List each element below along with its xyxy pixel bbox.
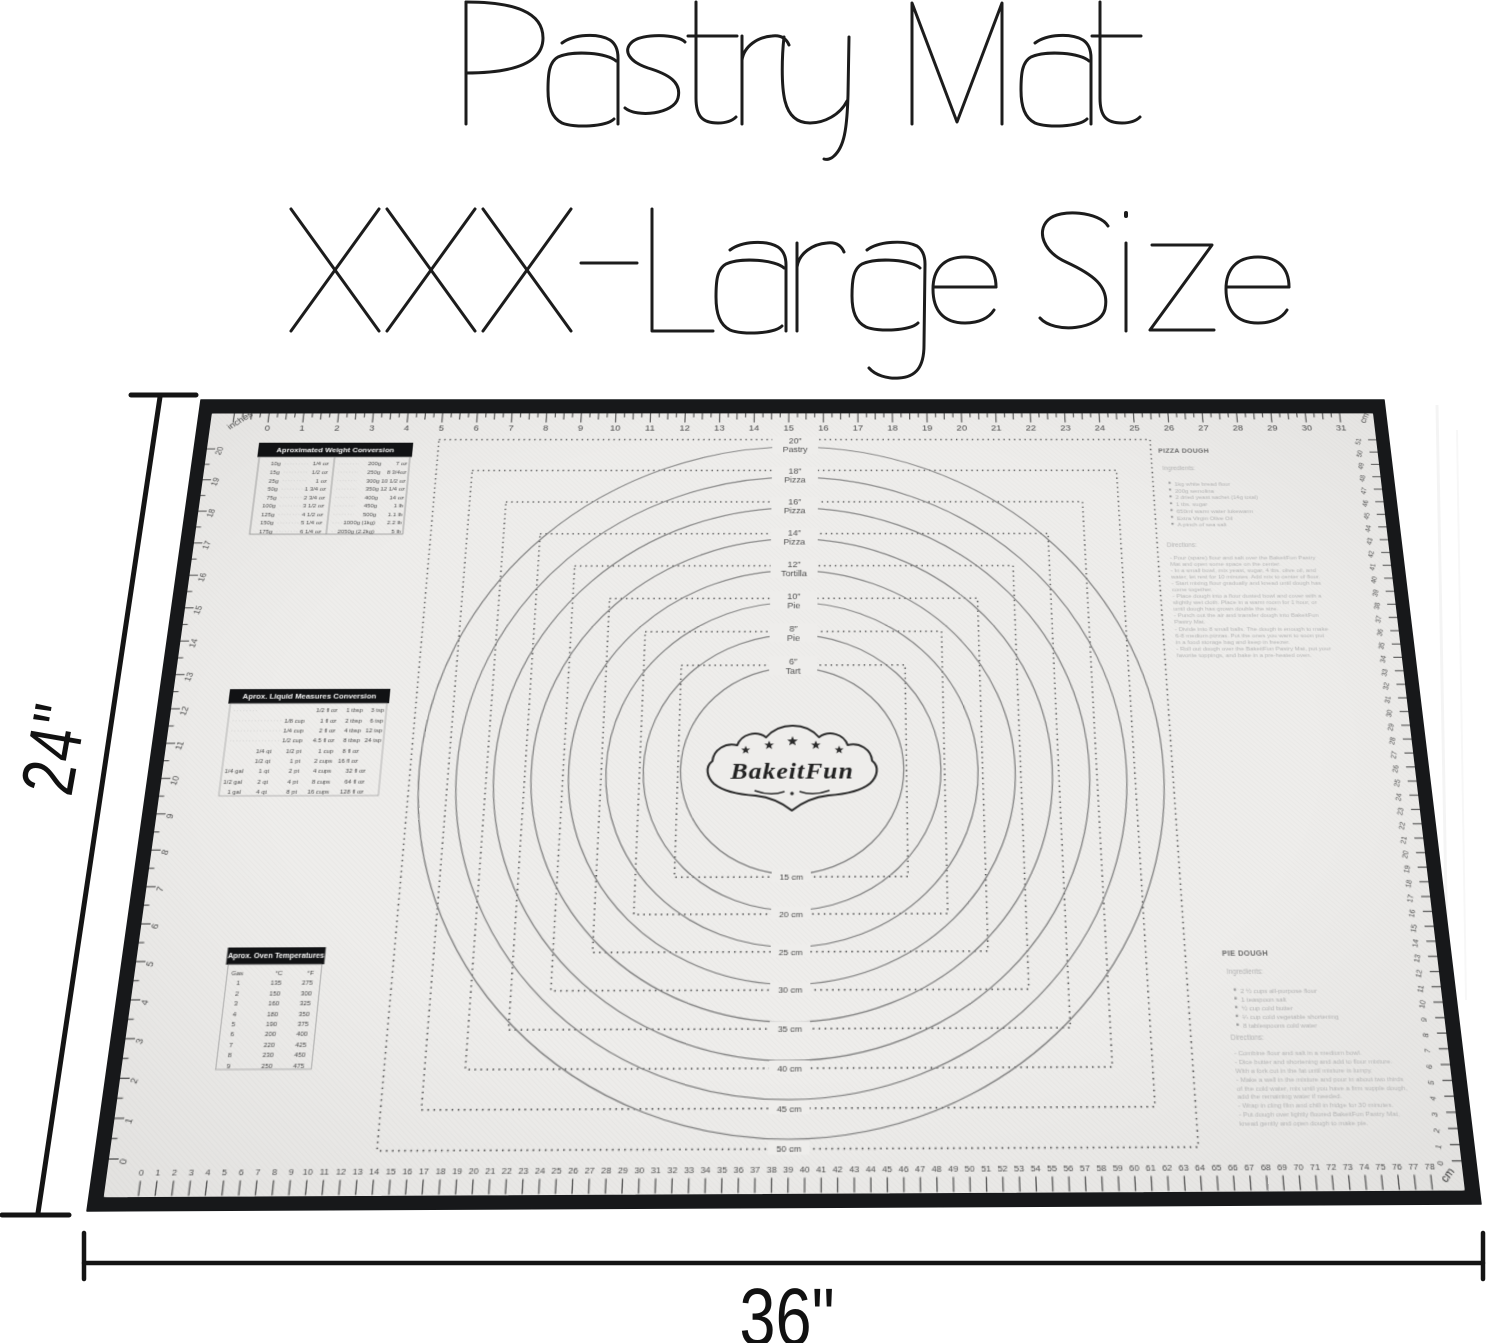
svg-text:24": 24": [6, 697, 103, 801]
svg-text:36": 36": [739, 1271, 834, 1343]
